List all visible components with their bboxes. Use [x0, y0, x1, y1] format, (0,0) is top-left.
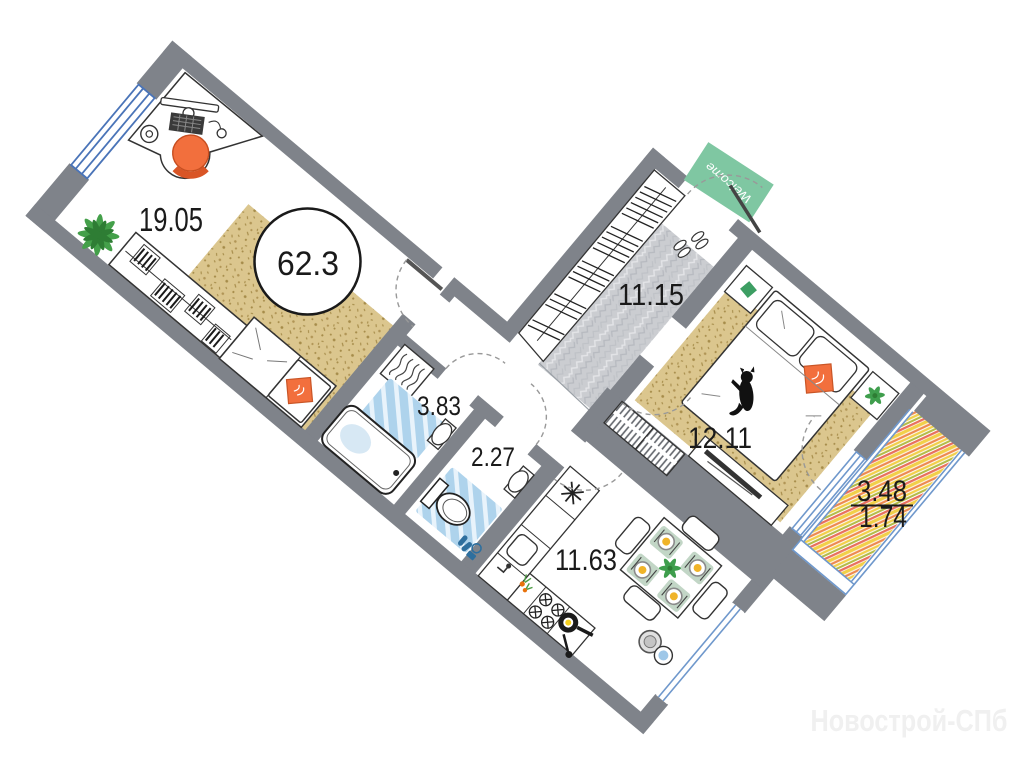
svg-text:62.3: 62.3 — [277, 245, 339, 283]
svg-text:2.27: 2.27 — [471, 442, 515, 472]
svg-text:11.63: 11.63 — [555, 544, 617, 577]
svg-text:12.11: 12.11 — [688, 422, 752, 455]
svg-text:3.83: 3.83 — [417, 391, 461, 421]
svg-text:Новострой-СПб: Новострой-СПб — [811, 703, 1008, 738]
svg-text:19.05: 19.05 — [139, 201, 203, 238]
svg-text:11.15: 11.15 — [618, 277, 684, 312]
svg-text:1.74: 1.74 — [859, 501, 907, 534]
